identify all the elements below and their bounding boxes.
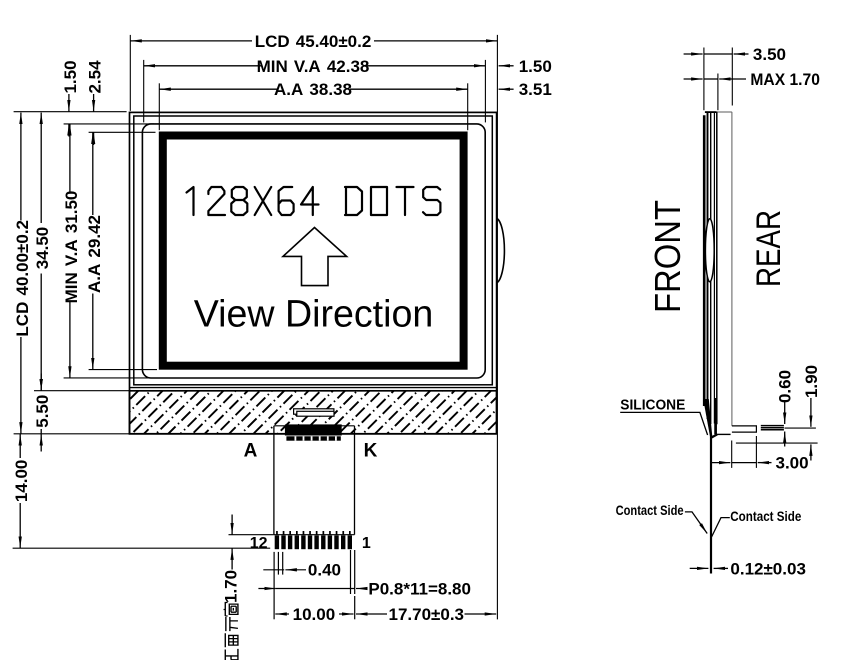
svg-text:1.50: 1.50 <box>61 60 80 93</box>
svg-text:0.40: 0.40 <box>308 561 341 580</box>
svg-text:17.70±0.3: 17.70±0.3 <box>389 605 465 624</box>
svg-text:14.00: 14.00 <box>12 460 31 503</box>
svg-text:5.50: 5.50 <box>33 395 52 428</box>
svg-text:12: 12 <box>250 535 268 552</box>
svg-text:A.A 38.38: A.A 38.38 <box>274 80 352 99</box>
svg-text:3.50: 3.50 <box>753 45 786 64</box>
svg-text:3.00: 3.00 <box>776 454 809 473</box>
svg-text:10.00: 10.00 <box>293 605 336 624</box>
svg-text:1.90: 1.90 <box>802 365 821 398</box>
svg-text:0.12±0.03: 0.12±0.03 <box>730 559 806 578</box>
svg-text:1: 1 <box>362 535 371 552</box>
svg-text:2.54: 2.54 <box>86 60 105 94</box>
svg-text:1.70: 1.70 <box>222 570 241 603</box>
svg-text:FRONT: FRONT <box>647 200 688 313</box>
svg-text:P0.8*11=8.80: P0.8*11=8.80 <box>368 579 471 598</box>
svg-text:3.51: 3.51 <box>519 80 552 99</box>
svg-text:LCD 40.00±0.2: LCD 40.00±0.2 <box>13 220 32 337</box>
svg-text:MAX 1.70: MAX 1.70 <box>750 70 820 89</box>
svg-text:K: K <box>364 441 378 462</box>
svg-text:View Direction: View Direction <box>194 292 434 334</box>
svg-text:A: A <box>244 441 258 462</box>
svg-text:1.50: 1.50 <box>519 57 552 76</box>
svg-text:REAR: REAR <box>750 210 788 287</box>
svg-text:Contact Side: Contact Side <box>730 508 801 524</box>
svg-text:LCD 45.40±0.2: LCD 45.40±0.2 <box>255 32 372 51</box>
svg-text:SILICONE: SILICONE <box>620 398 685 414</box>
svg-text:Contact Side: Contact Side <box>616 502 684 518</box>
svg-text:A.A 29.42: A.A 29.42 <box>85 215 104 293</box>
svg-text:MIN V.A 42.38: MIN V.A 42.38 <box>257 57 370 76</box>
svg-text:0.60: 0.60 <box>776 370 795 403</box>
svg-text:34.50: 34.50 <box>33 227 52 270</box>
svg-text:MIN V.A 31.50: MIN V.A 31.50 <box>62 191 81 304</box>
